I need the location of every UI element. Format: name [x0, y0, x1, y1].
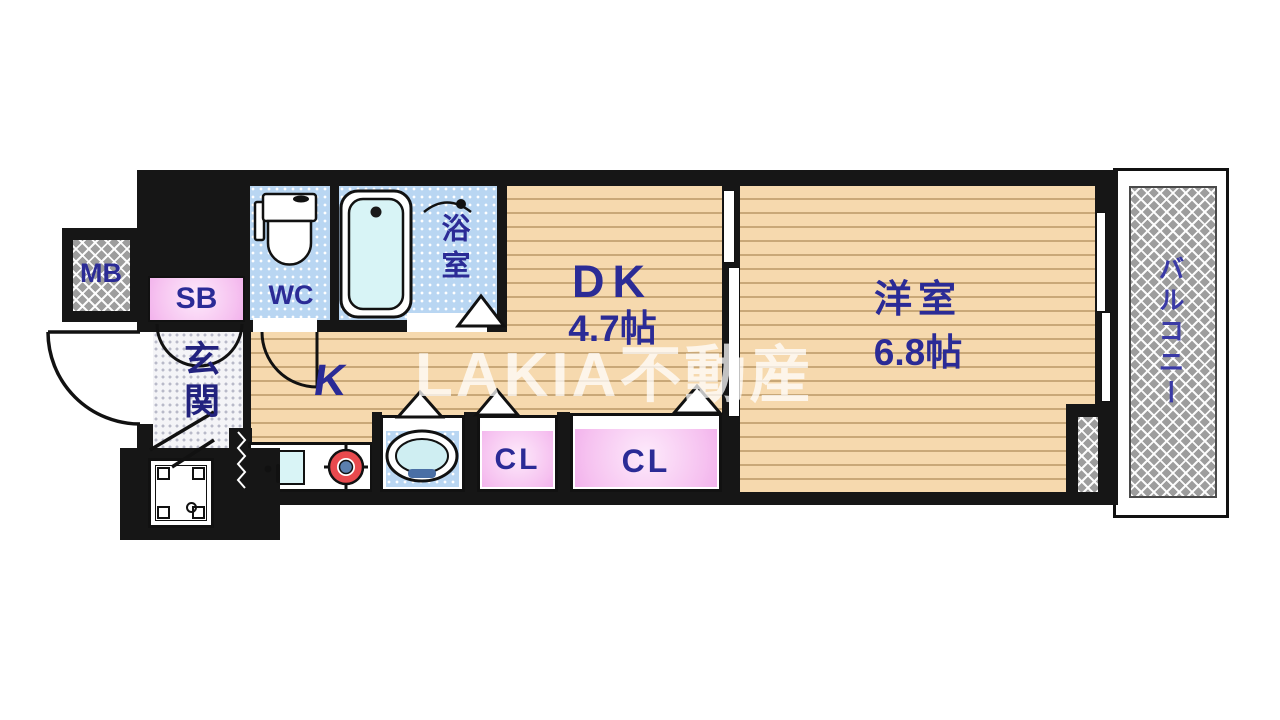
- floorplan-canvas: MB SB WC 浴室 玄関 K DK 4.7帖 洋室 6.8帖 CL CL バ…: [0, 0, 1280, 720]
- kitchen-label: K: [297, 358, 363, 404]
- entrance-door-arc: [48, 332, 140, 424]
- closet2-door-mark: [674, 386, 720, 413]
- shower-icon: [424, 199, 471, 212]
- western-room-label: 洋室: [838, 280, 998, 320]
- stove-icon: [324, 445, 368, 489]
- closet1-label: CL: [482, 444, 553, 476]
- toilet-icon: [255, 194, 316, 265]
- sb-label: SB: [148, 283, 245, 315]
- western-room-size: 6.8帖: [838, 332, 998, 372]
- genkan-label: 玄関: [181, 340, 217, 424]
- closet2-label: CL: [575, 444, 717, 478]
- bath-label: 浴室: [438, 213, 467, 287]
- bath-door-mark: [458, 296, 504, 326]
- washer-door-mark: [398, 392, 442, 417]
- washer-icon: [387, 431, 457, 481]
- wc-label: WC: [250, 280, 332, 310]
- bathtub-icon: [341, 191, 411, 317]
- dk-label: DK: [530, 258, 695, 304]
- closet1-door-mark: [476, 390, 518, 415]
- dk-size: 4.7帖: [530, 308, 695, 348]
- partition-zigzag: [238, 432, 245, 488]
- mb-label: MB: [70, 258, 132, 288]
- balcony-label: バルコニー: [1157, 255, 1183, 410]
- faucet-icon: [265, 464, 281, 483]
